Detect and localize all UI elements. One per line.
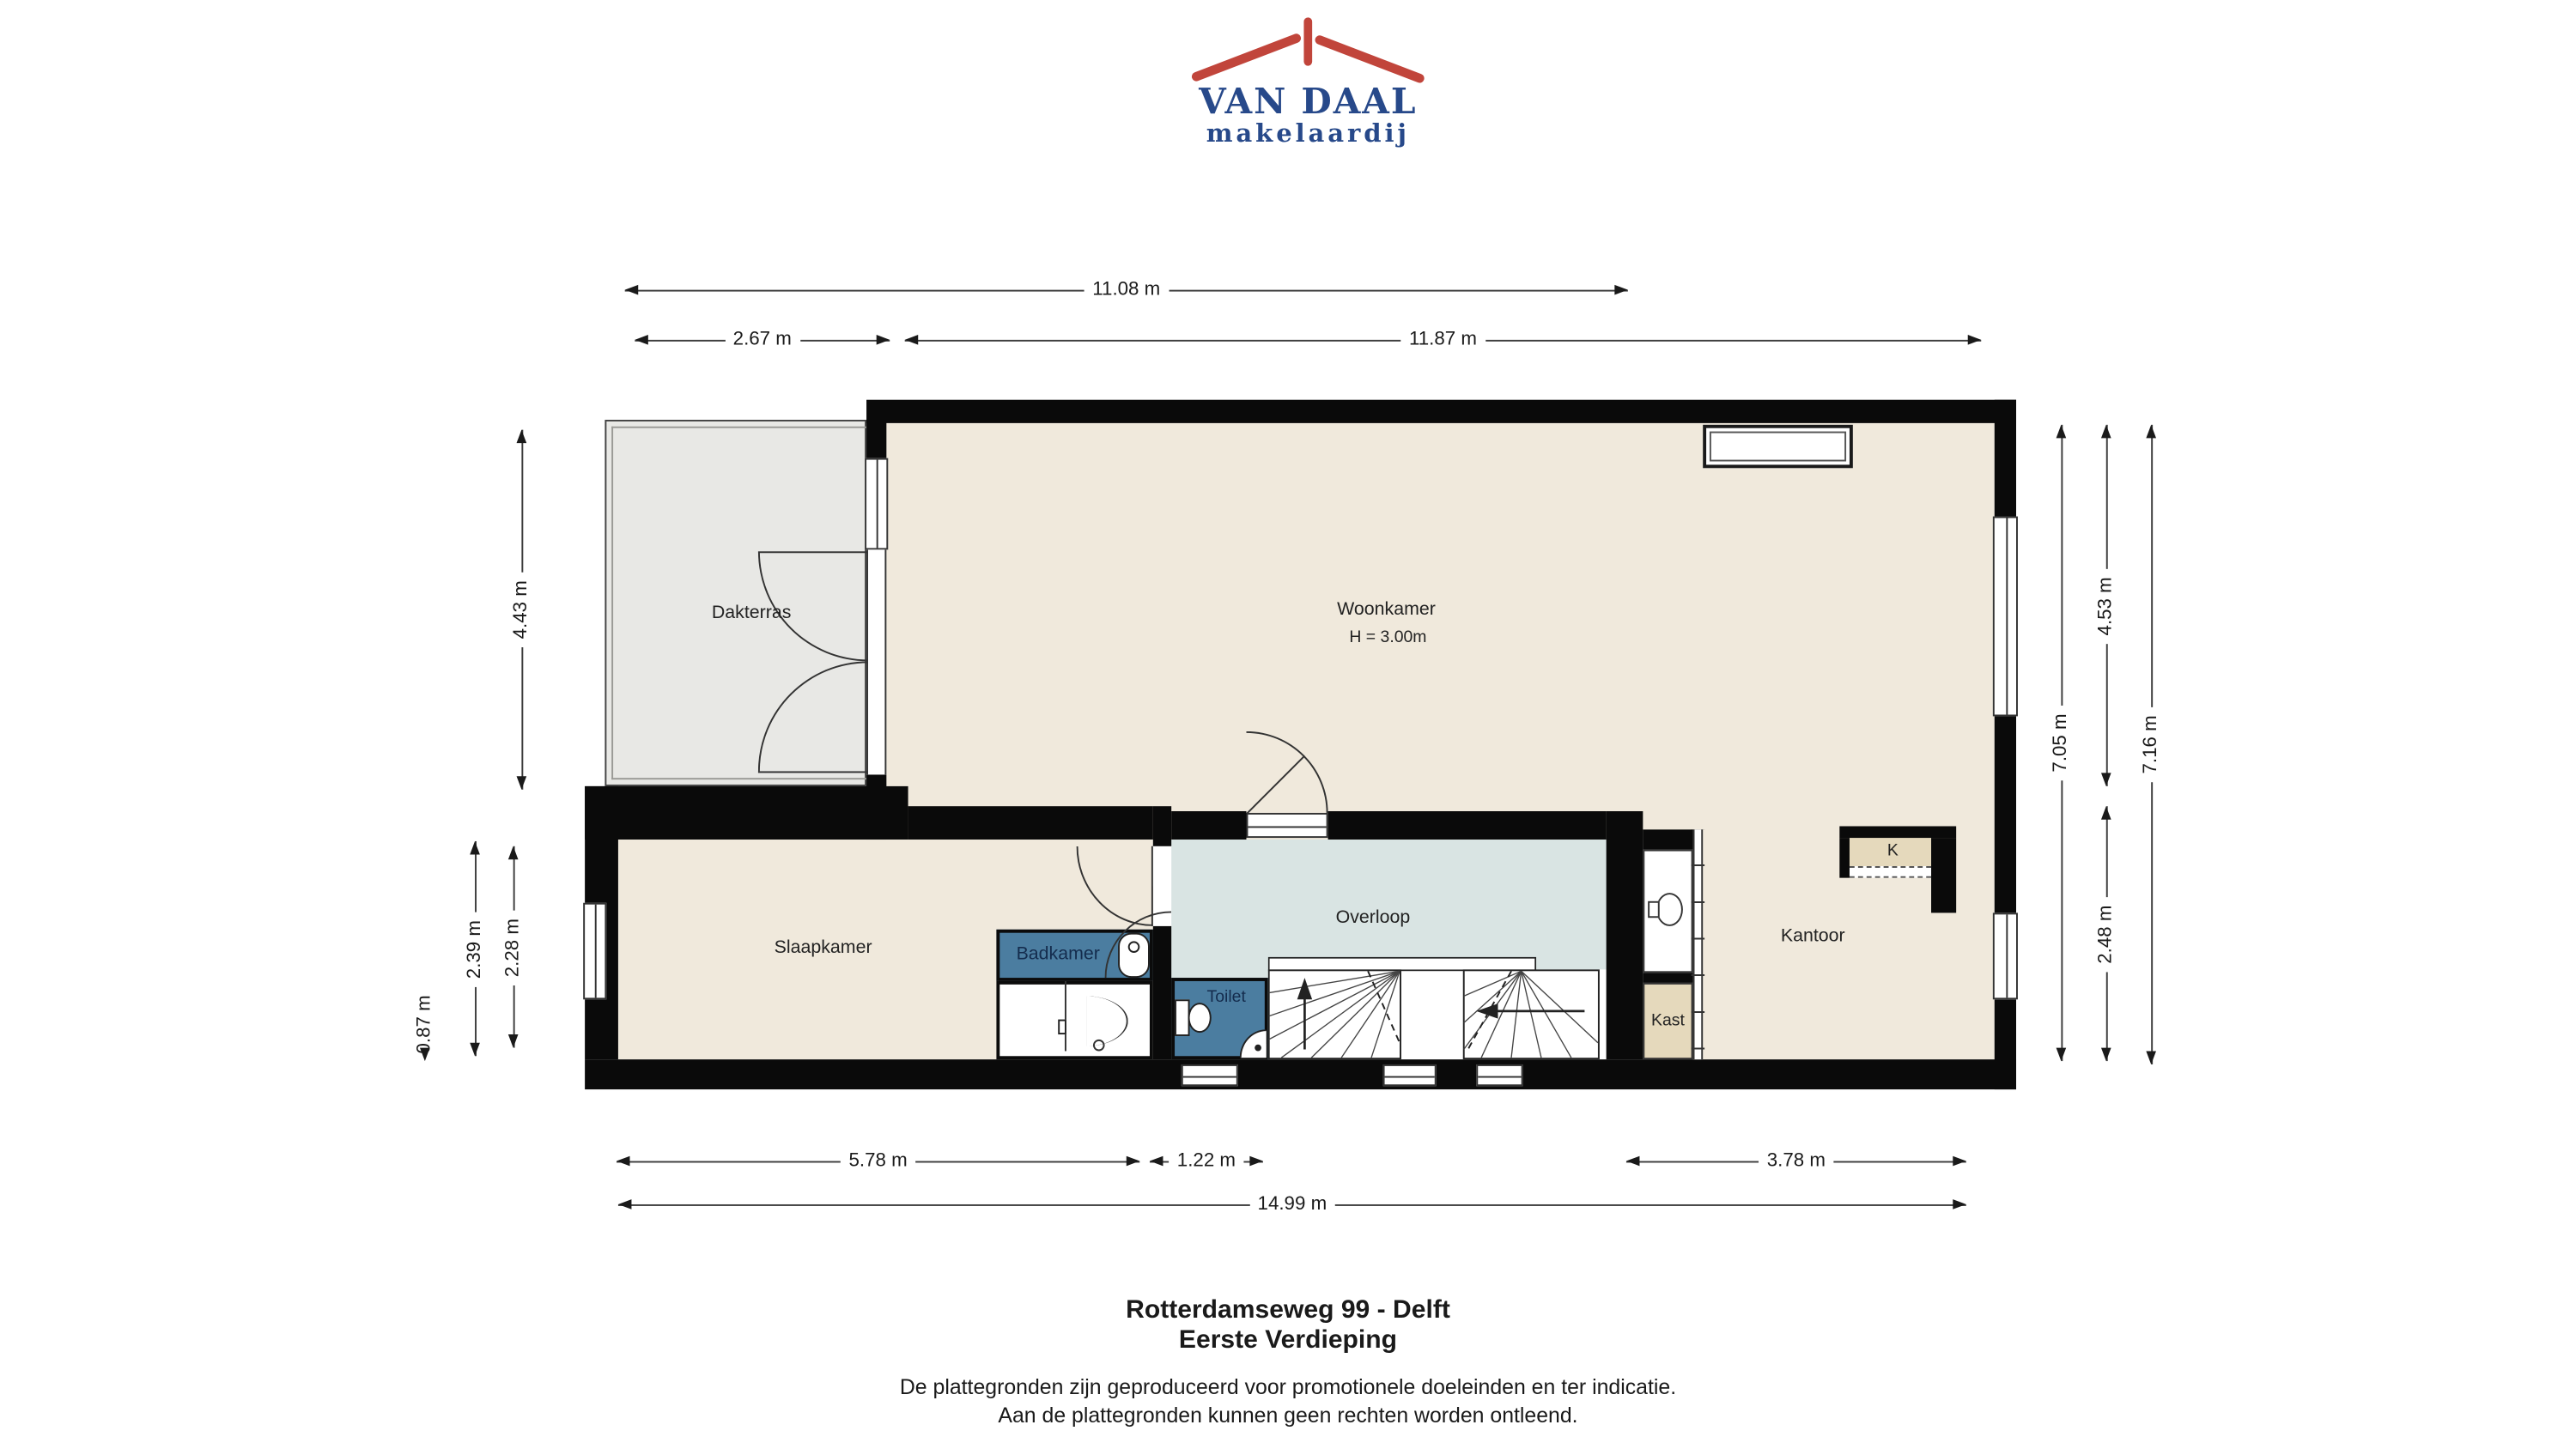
k-nook-shelf-dashed: [1850, 866, 1931, 878]
wc-nook-cistern: [1648, 901, 1660, 918]
wall: [908, 806, 1153, 840]
bathtub: [1118, 933, 1150, 978]
dim-left-inner: 2.28 m: [513, 846, 515, 1048]
label-toilet: Toilet: [1207, 989, 1246, 1007]
dim-label: 5.78 m: [841, 1151, 916, 1171]
label-kantoor: Kantoor: [1781, 926, 1845, 946]
dim-left-outer: 2.39 m: [475, 841, 477, 1056]
wc-nook-toilet: [1656, 893, 1683, 926]
wall: [1839, 838, 1850, 878]
wall: [1995, 716, 2016, 912]
footer: Rotterdamseweg 99 - Delft Eerste Verdiep…: [0, 1296, 2576, 1429]
door-opening: [866, 549, 886, 774]
wall: [1995, 400, 2016, 517]
wall: [1643, 973, 1692, 983]
dim-label: 2.48 m: [2096, 896, 2116, 972]
window: [1383, 1064, 1437, 1086]
dim-right-kantoor: 2.48 m: [2106, 806, 2108, 1061]
logo-subtitle: makelaardij: [1166, 120, 1449, 148]
glass-partition: [1693, 829, 1704, 1059]
dim-bottom-total: 14.99 m: [618, 1204, 1966, 1206]
wall: [866, 420, 886, 458]
dim-label: 2.39 m: [465, 911, 484, 986]
dim-label: 0.87 m: [415, 987, 434, 1063]
dim-top-woonkamer: 11.87 m: [905, 340, 1982, 342]
wall: [1643, 829, 1692, 849]
footer-address: Rotterdamseweg 99 - Delft: [0, 1296, 2576, 1326]
wall: [866, 774, 886, 840]
label-woonkamer-height: H = 3.00m: [1349, 629, 1426, 647]
dim-right-woonkamer: 4.53 m: [2106, 425, 2108, 786]
dim-bottom-kantoor: 3.78 m: [1626, 1161, 1966, 1163]
wall: [1153, 806, 1171, 846]
wall: [1839, 826, 1956, 838]
dim-label: 1.22 m: [1169, 1151, 1244, 1171]
label-slaapkamer: Slaapkamer: [775, 938, 872, 958]
label-overloop: Overloop: [1336, 908, 1411, 928]
window: [1993, 912, 2018, 999]
shower-drain: [1093, 1040, 1105, 1052]
door-threshold: [1246, 813, 1327, 838]
wall: [1607, 811, 1643, 1059]
dim-label: 11.87 m: [1400, 330, 1485, 349]
label-kast: Kast: [1651, 1012, 1685, 1030]
agency-logo: VAN DAAL makelaardij: [1166, 16, 1449, 147]
label-dakterras: Dakterras: [712, 603, 792, 622]
toilet-bowl: [1188, 1003, 1212, 1033]
dim-bottom-slaapkamer: 5.78 m: [617, 1161, 1139, 1163]
dim-label: 2.67 m: [725, 330, 800, 349]
window: [1182, 1064, 1238, 1086]
label-woonkamer: Woonkamer: [1337, 600, 1436, 620]
shower-screen: [1065, 981, 1066, 1052]
sink-faucet: [1255, 1045, 1261, 1052]
dim-left-step: 0.87 m: [425, 988, 427, 1061]
wall: [1171, 811, 1246, 840]
window: [583, 903, 606, 1000]
shower-door-pull: [1058, 1020, 1066, 1034]
french-door-leaf: [758, 771, 868, 773]
room-woonkamer: [886, 423, 1994, 840]
roof-window: [1703, 425, 1853, 468]
wall: [866, 400, 2016, 423]
staircase: [1268, 956, 1607, 1059]
roof-window-inner: [1710, 432, 1846, 462]
bathtub-faucet: [1128, 941, 1140, 953]
dim-label: 11.08 m: [1084, 280, 1169, 300]
dim-top-dakterras: 2.67 m: [635, 340, 890, 342]
dim-label: 3.78 m: [1759, 1151, 1834, 1171]
room-shower: [996, 981, 1152, 1059]
window: [1993, 517, 2018, 717]
dim-top-total: 11.08 m: [625, 290, 1628, 292]
dim-label: 4.53 m: [2096, 568, 2116, 644]
footer-floor-name: Eerste Verdieping: [0, 1326, 2576, 1356]
floorplan-page: VAN DAAL makelaardij: [0, 0, 2576, 1449]
dim-label: 14.99 m: [1249, 1194, 1335, 1214]
wall: [1328, 811, 1607, 840]
footer-disclaimer-2: Aan de plattegronden kunnen geen rechten…: [0, 1401, 2576, 1430]
dim-label: 7.16 m: [2142, 707, 2161, 783]
dim-right-outer: 7.16 m: [2151, 425, 2153, 1064]
logo-title: VAN DAAL: [1166, 83, 1449, 120]
dim-left-dakterras: 4.43 m: [521, 430, 523, 790]
dim-right-inner: 7.05 m: [2061, 425, 2063, 1061]
roof-icon: [1183, 16, 1433, 83]
dim-label: 7.05 m: [2051, 706, 2071, 781]
wall: [585, 1059, 2016, 1089]
dim-label: 2.28 m: [503, 909, 523, 985]
window: [1476, 1064, 1522, 1086]
label-k-nook: K: [1887, 842, 1899, 860]
window: [865, 458, 888, 550]
label-badkamer: Badkamer: [1017, 944, 1100, 964]
wall: [585, 786, 908, 840]
footer-disclaimer-1: De plattegronden zijn geproduceerd voor …: [0, 1372, 2576, 1401]
dim-bottom-stairs: 1.22 m: [1150, 1161, 1263, 1163]
wall: [1931, 838, 1956, 912]
dim-label: 4.43 m: [512, 572, 532, 647]
